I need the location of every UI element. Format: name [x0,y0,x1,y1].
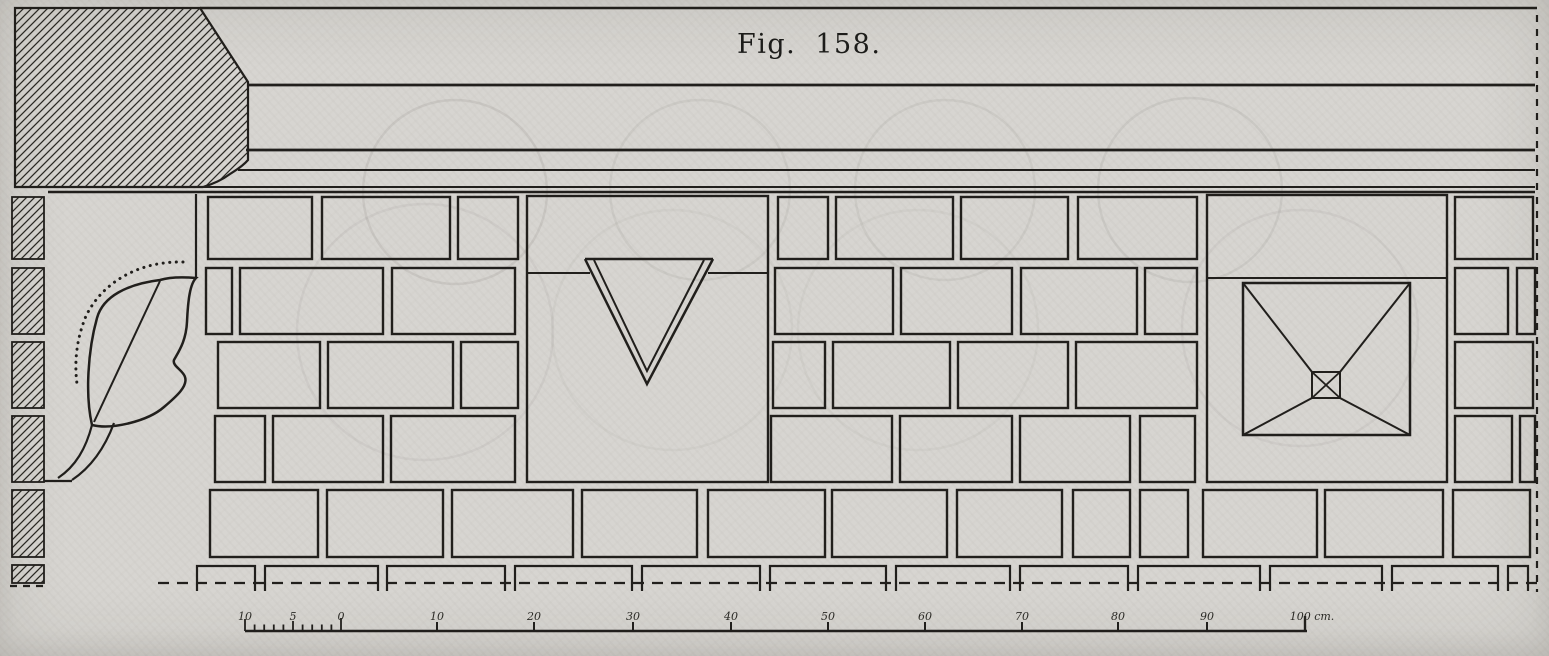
console-chord [94,281,160,422]
scale-label: 90 [1200,610,1214,623]
ashlar-block [1073,490,1130,557]
section-block [12,565,44,583]
ashlar-block [1517,268,1535,334]
plinth-block [1270,566,1382,591]
hatched-cornice-block [15,8,248,187]
plinth-block [1020,566,1128,591]
ashlar-block [1520,416,1535,482]
engraving-page: Fig. 158. 1050102030405060708090100 cm. [0,0,1549,656]
plinth-block [770,566,886,591]
plinth-block [1508,566,1528,591]
ashlar-block [1455,416,1512,482]
ghost-arc [552,210,792,450]
ashlar-block [328,342,453,408]
cornice-moulding-lines [48,8,1537,192]
ashlar-block [392,268,515,334]
plinth-block [387,566,505,591]
ashlar-block [582,490,697,557]
ashlar-block [771,416,892,482]
console-dotted-arc [76,262,183,384]
ashlar-block [210,490,318,557]
ashlar-block [833,342,950,408]
coffer-diagonal [1243,398,1312,435]
scale-label: 20 [526,610,541,623]
ashlar-block [273,416,383,482]
ashlar-block [832,490,947,557]
coffer-diagonal [1340,283,1410,372]
scale-label: 80 [1111,610,1125,623]
ashlar-block [1140,416,1195,482]
plinth-block [1392,566,1498,591]
ashlar-block [901,268,1012,334]
panel-block [527,196,768,482]
ground-dashed-line [10,583,1537,586]
ashlar-block [1078,197,1197,259]
ashlar-block [708,490,825,557]
ashlar-block [957,490,1062,557]
plinth-block [1138,566,1260,591]
scale-label: 70 [1015,610,1029,623]
ashlar-block [1203,490,1317,557]
console-bracket-profile [44,194,196,481]
coffer-outer-square [1243,283,1410,435]
console-stem [58,425,92,478]
scale-label: 10 [430,610,444,623]
ashlar-block [452,490,573,557]
ashlar-block [958,342,1068,408]
ghost-arc [1182,210,1418,446]
ashlar-block [1455,268,1508,334]
triangle-ornament-inner [594,260,704,371]
ashlar-block [322,197,450,259]
coffer-panel [1207,195,1447,482]
ashlar-block [391,416,515,482]
ghost-arc [1098,98,1282,282]
scale-label: 40 [723,610,738,623]
ghost-arc [798,210,1038,450]
scale-label: 0 [338,610,345,623]
ashlar-block [1145,268,1197,334]
section-block [12,342,44,408]
scale-bar: 1050102030405060708090100 cm. [238,610,1334,631]
plinth-block [515,566,632,591]
scale-label: 60 [918,610,932,623]
section-block [12,197,44,259]
masonry-elevation-drawing: 1050102030405060708090100 cm. [0,0,1549,656]
ashlar-block [1020,416,1130,482]
ashlar-block [961,197,1068,259]
plinth-block [896,566,1010,591]
ashlar-block [1455,197,1533,259]
ghost-arc [855,100,1035,280]
plinth-block [197,566,255,591]
ashlar-block [778,197,828,259]
ashlar-block [240,268,383,334]
ashlar-block [1455,342,1533,408]
plinth-course [197,566,1528,591]
scale-label: 50 [821,610,835,623]
scale-label: 30 [626,610,640,623]
ashlar-block [1076,342,1197,408]
scale-label: 5 [290,610,297,623]
section-block [12,268,44,334]
scale-label: 10 [238,610,252,623]
ashlar-block [461,342,518,408]
ashlar-block [1453,490,1530,557]
ashlar-block [1140,490,1188,557]
coffer-diagonal [1243,283,1312,372]
section-block [12,416,44,482]
console-stem [72,423,114,480]
ashlar-block [327,490,443,557]
ashlar-block [458,197,518,259]
triangle-niche-panel [527,196,768,482]
wall-section-strip [12,197,44,583]
ashlar-block [215,416,265,482]
console-leaf-outline [88,277,196,426]
plinth-block [642,566,760,591]
section-block [12,490,44,557]
scale-label: 100 cm. [1290,610,1335,623]
ashlar-block [1325,490,1443,557]
coffer-diagonal [1340,398,1410,435]
corner-block-section [15,8,248,187]
ashlar-block [208,197,312,259]
plinth-block [265,566,378,591]
ashlar-block [206,268,232,334]
